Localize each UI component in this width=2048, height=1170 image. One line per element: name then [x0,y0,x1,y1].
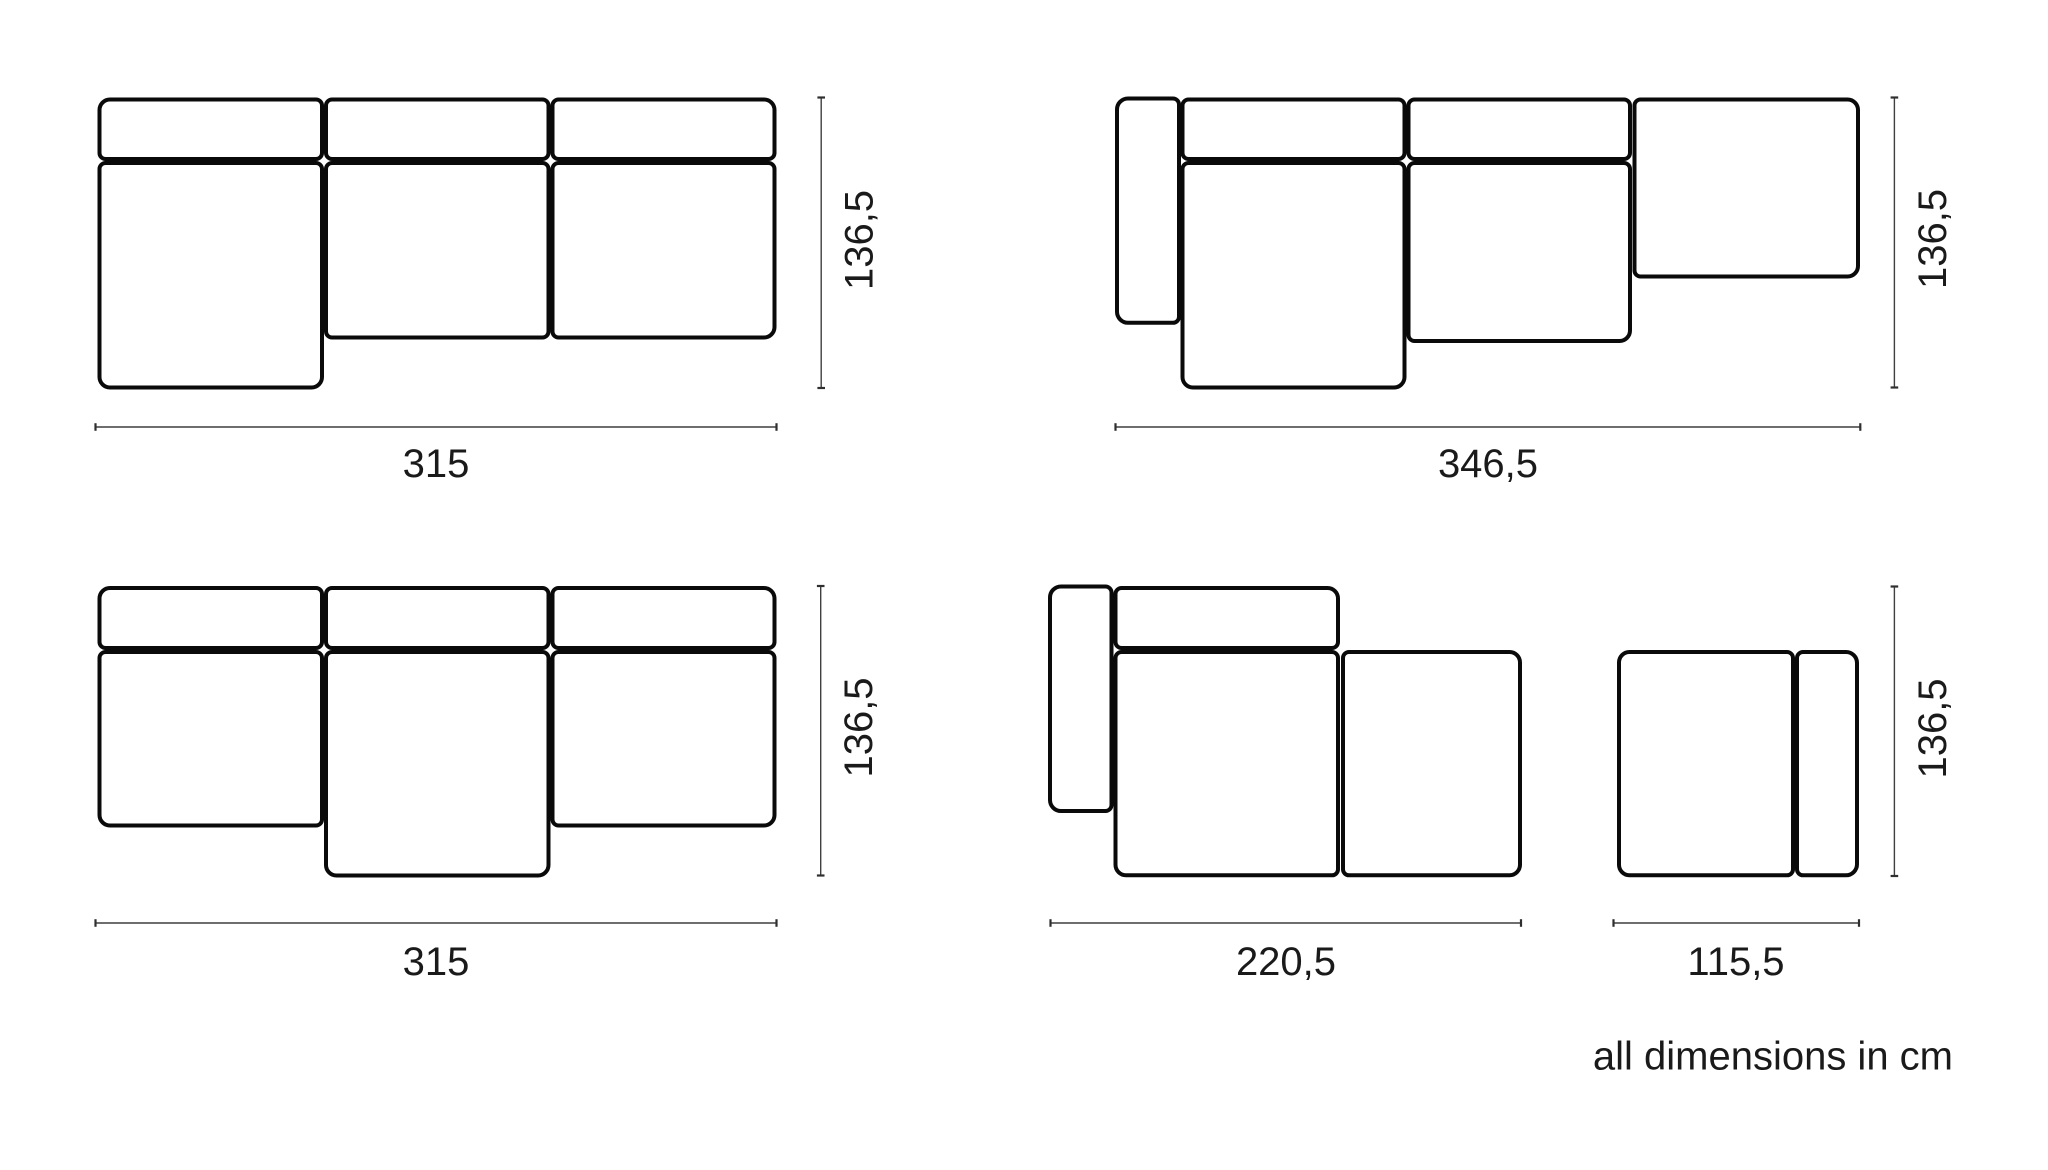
svg-text:136,5: 136,5 [837,677,881,777]
svg-text:136,5: 136,5 [1911,678,1955,778]
svg-text:all dimensions in cm: all dimensions in cm [1593,1035,1953,1079]
svg-text:220,5: 220,5 [1236,940,1336,984]
svg-text:136,5: 136,5 [838,190,882,290]
svg-text:136,5: 136,5 [1911,189,1955,289]
svg-text:315: 315 [403,442,470,486]
svg-text:115,5: 115,5 [1687,940,1784,984]
svg-text:346,5: 346,5 [1438,442,1538,486]
svg-text:315: 315 [403,940,470,984]
